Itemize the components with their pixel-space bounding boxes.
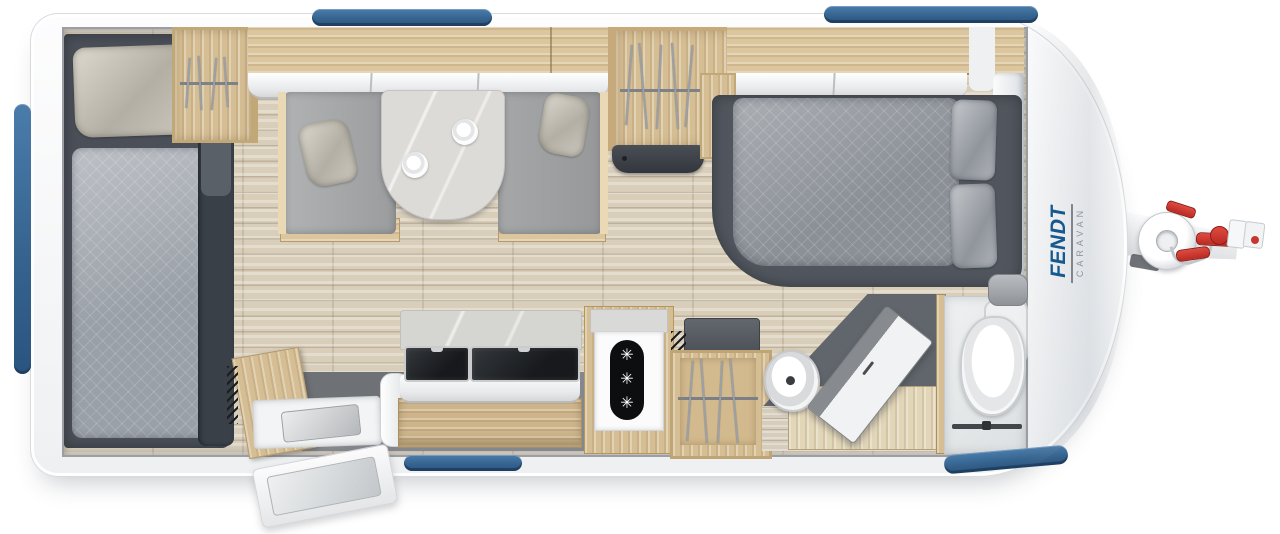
overhead-shelf-right bbox=[727, 27, 969, 75]
shelf-gap-panel bbox=[969, 27, 995, 91]
wardrobe-left bbox=[172, 27, 258, 143]
kitchen-worktop bbox=[400, 310, 582, 350]
coupling-head-cap bbox=[1242, 221, 1265, 249]
double-bed-duvet bbox=[733, 98, 959, 266]
cup-icon bbox=[452, 119, 478, 145]
window-accent-bottom-left bbox=[404, 455, 522, 471]
hanger-icon bbox=[684, 45, 693, 127]
door-handle-icon bbox=[862, 361, 874, 375]
freezer-star: ✳ bbox=[620, 348, 633, 364]
bench-wood-edge bbox=[278, 92, 286, 234]
tv-shelf bbox=[612, 145, 704, 173]
toilet bbox=[960, 316, 1026, 416]
caravan-floorplan: ✳ ✳ ✳ FENDT CARAVAN bbox=[0, 0, 1280, 534]
dinette-table bbox=[381, 90, 505, 220]
shelf-seam bbox=[550, 27, 552, 73]
double-bed-pillow bbox=[950, 183, 998, 269]
tv-button bbox=[622, 156, 627, 161]
bench-wood-edge bbox=[600, 92, 608, 234]
fridge: ✳ ✳ ✳ bbox=[584, 306, 674, 454]
single-bed-duvet bbox=[72, 148, 210, 438]
brand-subtitle: CARAVAN bbox=[1076, 207, 1085, 277]
overhead-shelf-left bbox=[248, 27, 608, 75]
entry-step bbox=[281, 404, 362, 443]
freezer-icon: ✳ ✳ ✳ bbox=[610, 340, 644, 420]
wardrobe-small bbox=[670, 350, 772, 459]
window-accent-left bbox=[14, 104, 31, 374]
entry-door-panel bbox=[266, 456, 382, 516]
hob-cover bbox=[404, 346, 470, 382]
sink-handle bbox=[518, 348, 530, 352]
hanger-icon bbox=[638, 43, 647, 129]
water-heater bbox=[988, 274, 1028, 306]
overhead-shelf-corner bbox=[995, 27, 1024, 73]
entry-step-tray bbox=[252, 396, 382, 449]
double-bed-pillow bbox=[950, 99, 998, 181]
brand-name: FENDT bbox=[1048, 201, 1073, 284]
freezer-star: ✳ bbox=[620, 396, 633, 412]
brand-logo: FENDT CARAVAN bbox=[1042, 194, 1090, 290]
door-hinge bbox=[227, 366, 238, 424]
coupling-red-dot bbox=[1251, 236, 1259, 244]
hanger-icon bbox=[625, 45, 633, 125]
window-accent-top-left bbox=[312, 9, 492, 26]
sink-cover bbox=[470, 346, 580, 382]
kitchen-cabinet-front bbox=[398, 398, 582, 448]
hanger-icon bbox=[656, 45, 662, 129]
hanger-icon bbox=[671, 43, 679, 129]
wardrobe-small-top bbox=[684, 318, 760, 354]
fridge-top bbox=[590, 309, 668, 333]
hob-handle bbox=[431, 348, 443, 352]
window-accent-top-right bbox=[824, 6, 1038, 23]
locker-divider bbox=[832, 73, 835, 97]
drain-cap bbox=[982, 421, 991, 430]
freezer-star: ✳ bbox=[620, 372, 633, 388]
cup-icon bbox=[402, 152, 428, 178]
faucet-icon bbox=[786, 376, 796, 386]
